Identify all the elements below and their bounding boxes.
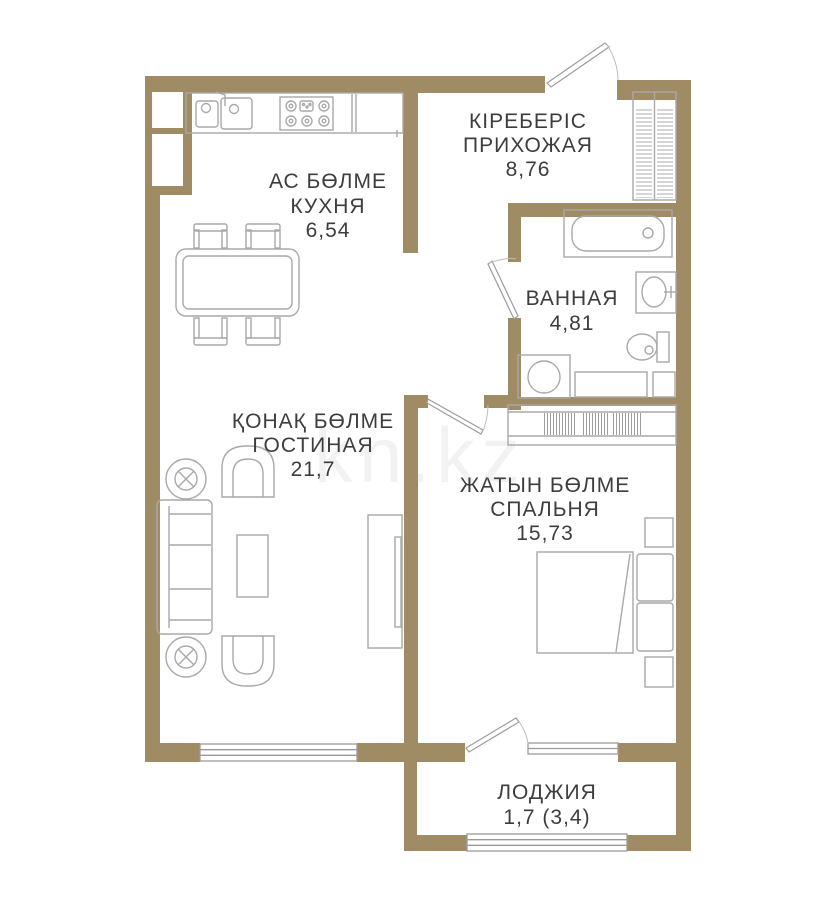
stove bbox=[280, 97, 333, 130]
side-table-bottom bbox=[166, 637, 206, 677]
nightstand-bottom bbox=[645, 657, 673, 687]
dining-set bbox=[176, 224, 299, 345]
wall-loggia-bottom-left bbox=[404, 835, 467, 851]
hallway-title-kk: КІРЕБЕРІС bbox=[469, 110, 587, 133]
wall-bath-left-bottom bbox=[508, 318, 521, 410]
wall-bottom-left-corner bbox=[145, 743, 200, 762]
floor-plan-svg: kn.kz bbox=[0, 0, 833, 900]
toilet bbox=[627, 332, 669, 362]
bedroom-wardrobe bbox=[508, 405, 676, 445]
wall-living-bedroom-partition bbox=[404, 395, 418, 743]
wall-bedroom-door-stub-left bbox=[404, 395, 428, 408]
coffee-table bbox=[237, 535, 268, 597]
bath-cabinet-small bbox=[653, 372, 675, 397]
washing-machine bbox=[518, 355, 570, 398]
wall-kitchen-hall-divider bbox=[403, 76, 418, 253]
label-bathroom: ВАННАЯ 4,81 bbox=[526, 287, 619, 335]
loggia-window bbox=[467, 834, 627, 851]
loggia-title-ru: ЛОДЖИЯ bbox=[497, 781, 597, 804]
pillow-top bbox=[637, 554, 673, 601]
wall-loggia-left bbox=[404, 743, 417, 850]
blanket-fold bbox=[616, 554, 630, 652]
entrance-door bbox=[547, 43, 618, 87]
hallway-wardrobe bbox=[633, 92, 676, 200]
dining-table bbox=[176, 249, 299, 316]
kitchen-title-ru: КУХНЯ bbox=[290, 195, 365, 218]
bathroom-door bbox=[488, 259, 518, 320]
loggia-door bbox=[466, 718, 528, 752]
kitchen-area: 6,54 bbox=[306, 219, 351, 242]
bathroom-area: 4,81 bbox=[550, 312, 595, 335]
living-area: 21,7 bbox=[291, 458, 336, 481]
label-loggia: ЛОДЖИЯ 1,7 (3,4) bbox=[497, 781, 597, 829]
tv-icon bbox=[395, 537, 401, 627]
bathroom-title-ru: ВАННАЯ bbox=[526, 287, 619, 310]
pillow-bottom bbox=[637, 603, 673, 651]
label-kitchen: АС БӨЛМЕ КУХНЯ 6,54 bbox=[269, 170, 387, 242]
label-hallway: КІРЕБЕРІС ПРИХОЖАЯ 8,76 bbox=[463, 110, 593, 181]
wall-loggia-bottom-right bbox=[627, 835, 691, 851]
armchair-bottom bbox=[222, 636, 274, 686]
kitchen-sink bbox=[196, 92, 252, 129]
side-table-top bbox=[166, 459, 206, 499]
bathroom-sink bbox=[636, 272, 678, 313]
wall-bedroom-bottom-right bbox=[618, 743, 691, 762]
kitchen-title-kk: АС БӨЛМЕ bbox=[269, 170, 387, 193]
bedroom-title-kk: ЖАТЫН БӨЛМЕ bbox=[460, 474, 631, 497]
wall-top-left bbox=[145, 76, 545, 93]
living-title-ru: ГОСТИНАЯ bbox=[252, 434, 373, 457]
nightstand-top bbox=[645, 518, 673, 547]
living-title-kk: ҚОНАҚ БӨЛМЕ bbox=[232, 410, 394, 433]
shaft-niche-bottom bbox=[152, 134, 183, 186]
bedroom-loggia-window bbox=[528, 743, 618, 754]
bedroom-furniture bbox=[508, 405, 676, 687]
bed bbox=[537, 552, 673, 653]
walls bbox=[145, 76, 691, 851]
shaft-niche-top bbox=[152, 92, 183, 128]
bath-cabinet bbox=[575, 372, 647, 397]
bathtub bbox=[564, 210, 672, 257]
bedroom-area: 15,73 bbox=[516, 522, 574, 545]
kitchen-furniture bbox=[186, 92, 403, 137]
tv-stand bbox=[368, 515, 402, 648]
hallway-title-ru: ПРИХОЖАЯ bbox=[463, 134, 593, 157]
loggia-area: 1,7 (3,4) bbox=[503, 806, 590, 829]
living-room-window bbox=[200, 744, 357, 761]
wall-bedroom-bottom-left bbox=[418, 743, 465, 762]
sofa bbox=[157, 500, 212, 634]
floor-plan-image: kn.kz bbox=[0, 0, 833, 900]
dining-chairs bbox=[194, 224, 280, 345]
hallway-area: 8,76 bbox=[506, 158, 551, 181]
bedroom-title-ru: СПАЛЬНЯ bbox=[490, 498, 600, 521]
wall-right bbox=[676, 80, 691, 847]
label-bedroom: ЖАТЫН БӨЛМЕ СПАЛЬНЯ 15,73 bbox=[460, 474, 631, 545]
